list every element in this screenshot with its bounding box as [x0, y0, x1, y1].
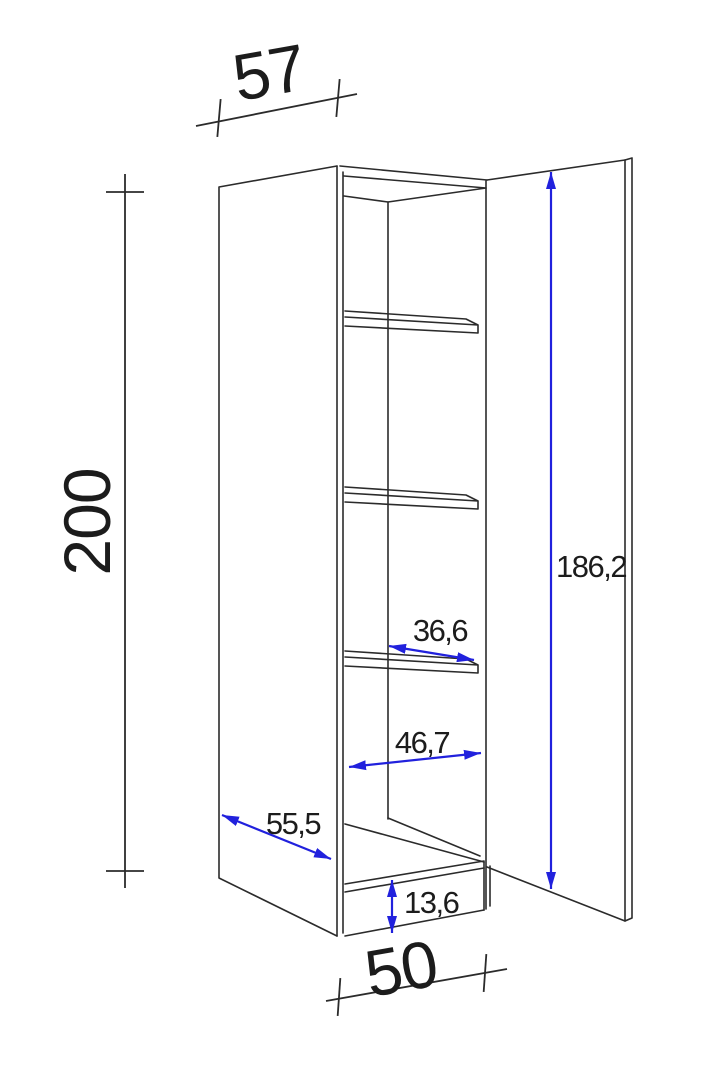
dimension-tick — [217, 99, 220, 137]
dimension-side-depth: 55,5 — [222, 806, 331, 859]
left-panel-front-edge — [337, 166, 343, 936]
dimension-bottom-width: 50 — [326, 926, 507, 1016]
top-panel-edges — [340, 166, 487, 202]
dimension-label-plinth-height: 13,6 — [404, 885, 459, 920]
dimension-interior-width: 46,7 — [349, 725, 481, 767]
door-top-edge — [487, 160, 625, 180]
dimension-label-bottom-width: 50 — [359, 926, 442, 1011]
shelf-2 — [345, 487, 478, 509]
dimension-arrow-line — [389, 646, 474, 660]
dimension-label-side-depth: 55,5 — [266, 806, 321, 841]
shelf-3 — [345, 651, 478, 673]
dimension-label-interior-width: 46,7 — [395, 725, 450, 760]
door-bottom-edge — [487, 867, 625, 921]
cabinet-line-drawing: 57 200 50 186,2 36,6 46,7 — [0, 0, 708, 1079]
door-right-edge — [625, 158, 632, 921]
base-right-edge — [484, 862, 490, 910]
interior-floor — [345, 818, 484, 862]
dimension-shelf-depth: 36,6 — [389, 613, 474, 660]
dimension-label-total-height: 200 — [50, 468, 124, 575]
dimension-tick — [338, 978, 341, 1016]
dimension-top-width: 57 — [196, 30, 357, 137]
dimension-label-door-height: 186,2 — [556, 549, 626, 584]
dimension-door-height: 186,2 — [551, 172, 626, 889]
dimension-total-height: 200 — [50, 174, 144, 888]
shelf-1 — [345, 311, 478, 333]
cabinet-door — [487, 158, 632, 921]
dimension-label-top-width: 57 — [227, 30, 310, 115]
furniture-dimension-diagram: 57 200 50 186,2 36,6 46,7 — [0, 0, 708, 1079]
dimension-label-shelf-depth: 36,6 — [413, 613, 468, 648]
